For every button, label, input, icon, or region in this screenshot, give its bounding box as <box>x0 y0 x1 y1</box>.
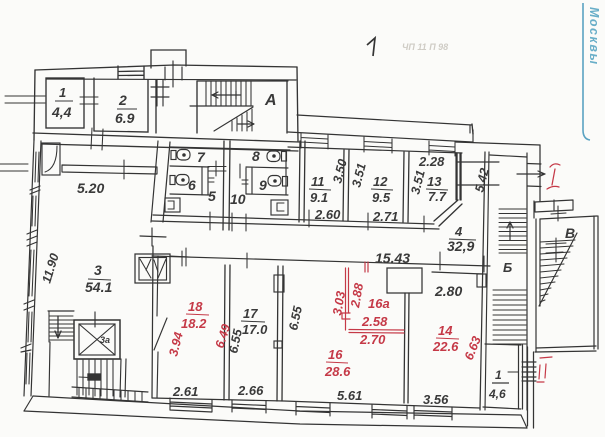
svg-text:7.7: 7.7 <box>428 189 447 204</box>
svg-text:18.2: 18.2 <box>181 316 207 331</box>
svg-text:7: 7 <box>197 149 206 165</box>
svg-text:4,6: 4,6 <box>488 387 506 401</box>
svg-text:9.1: 9.1 <box>310 190 328 205</box>
svg-text:15.43: 15.43 <box>375 250 410 266</box>
svg-text:16: 16 <box>328 347 343 362</box>
svg-text:3а: 3а <box>100 335 110 345</box>
svg-text:Москвы: Москвы <box>587 7 601 66</box>
svg-text:12: 12 <box>373 174 388 189</box>
svg-text:18: 18 <box>188 299 203 314</box>
svg-text:2.80: 2.80 <box>434 283 462 299</box>
svg-text:14: 14 <box>438 323 453 338</box>
svg-text:1: 1 <box>59 85 66 100</box>
svg-text:В: В <box>565 225 575 241</box>
svg-text:16а: 16а <box>368 296 390 311</box>
svg-text:2: 2 <box>118 92 127 108</box>
svg-text:А: А <box>264 92 277 109</box>
svg-text:5.61: 5.61 <box>337 388 362 403</box>
svg-text:6: 6 <box>188 177 196 193</box>
svg-text:8: 8 <box>252 148 260 164</box>
svg-text:22.6: 22.6 <box>432 339 459 354</box>
svg-text:2.58: 2.58 <box>361 314 388 329</box>
svg-text:28.6: 28.6 <box>324 364 351 379</box>
svg-text:2.28: 2.28 <box>418 154 445 169</box>
svg-text:5: 5 <box>208 188 216 204</box>
svg-text:11: 11 <box>311 174 325 189</box>
svg-text:6.9: 6.9 <box>115 110 135 126</box>
svg-text:ЧП 11 П 98: ЧП 11 П 98 <box>402 42 448 52</box>
svg-text:32,9: 32,9 <box>447 238 474 254</box>
svg-text:13: 13 <box>427 174 442 189</box>
svg-text:4,4: 4,4 <box>51 104 72 120</box>
svg-text:9.5: 9.5 <box>372 190 391 205</box>
svg-text:54.1: 54.1 <box>85 279 112 295</box>
svg-text:4: 4 <box>454 224 463 239</box>
svg-text:2.71: 2.71 <box>372 209 398 224</box>
svg-text:17.0: 17.0 <box>242 322 268 337</box>
svg-text:5.20: 5.20 <box>77 180 104 196</box>
svg-text:Б: Б <box>503 260 512 275</box>
svg-text:3: 3 <box>94 262 102 278</box>
svg-text:10: 10 <box>230 191 246 207</box>
svg-text:2.61: 2.61 <box>172 384 198 399</box>
svg-text:17: 17 <box>243 306 258 321</box>
svg-text:2.70: 2.70 <box>359 332 386 347</box>
svg-text:2.66: 2.66 <box>237 383 264 398</box>
svg-text:9: 9 <box>259 177 267 193</box>
svg-text:3.56: 3.56 <box>423 392 449 407</box>
svg-text:1: 1 <box>495 368 502 382</box>
svg-text:2.60: 2.60 <box>314 207 341 222</box>
